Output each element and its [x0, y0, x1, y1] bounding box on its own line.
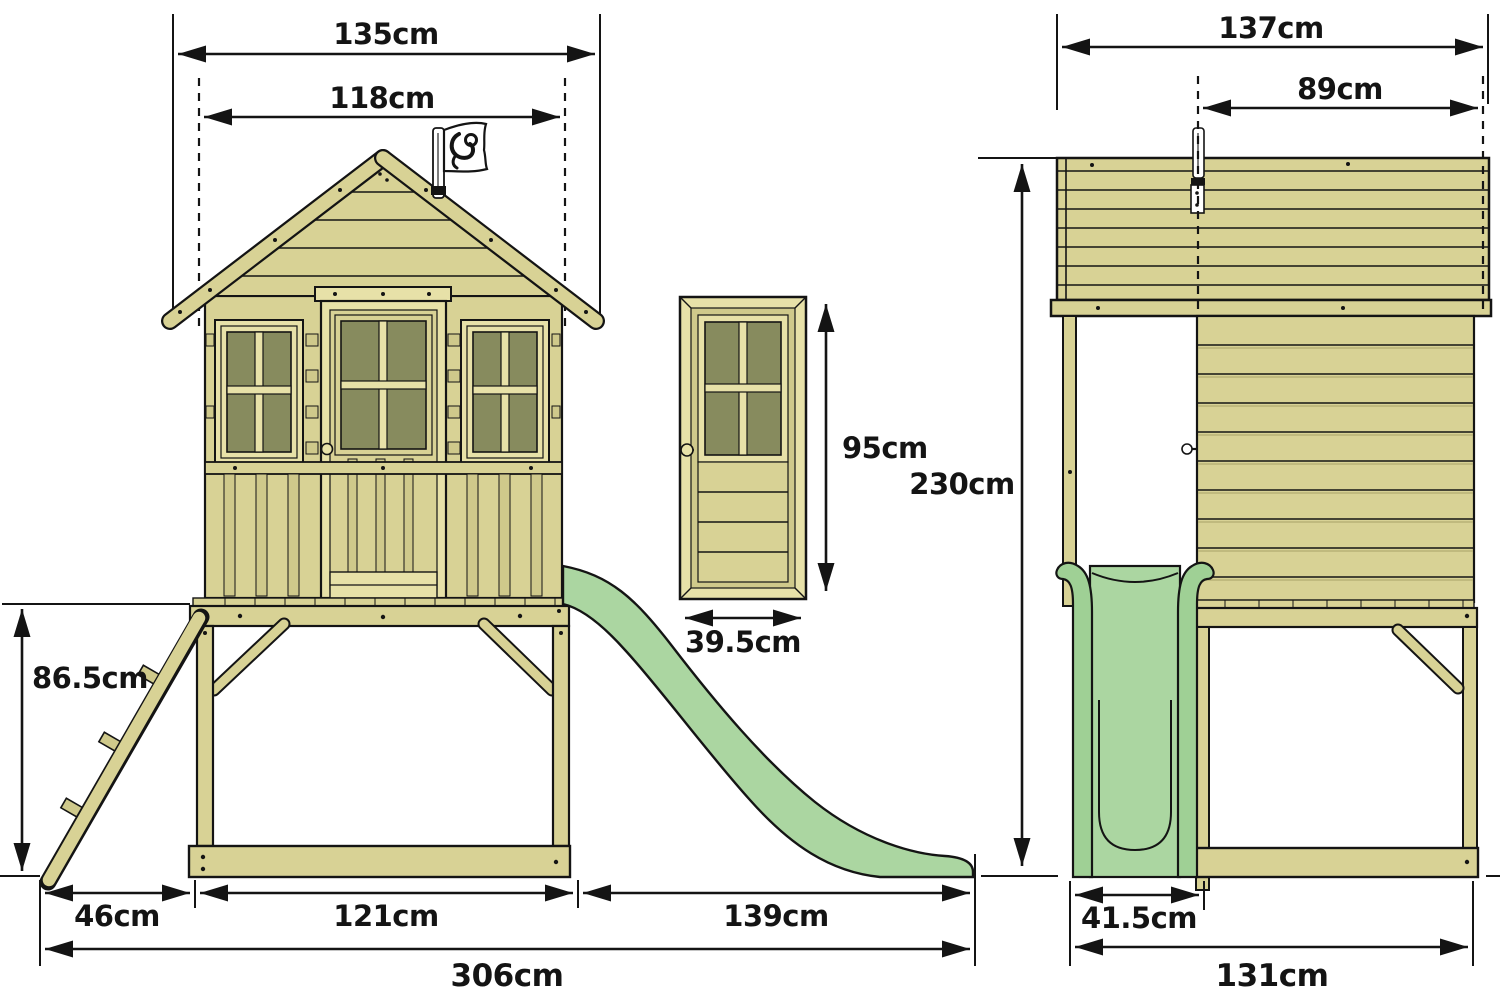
front-ladder: [48, 617, 201, 882]
door-muntin-horizontal: [705, 384, 781, 392]
label-total-length: 306cm: [451, 958, 564, 994]
side-wall: [1197, 316, 1474, 602]
label-inner-width: 118cm: [329, 81, 434, 115]
diagram-canvas: 135cm 118cm 86.5cm 46cm 121cm 139cm 306c…: [0, 0, 1500, 997]
label-base-depth: 131cm: [1216, 958, 1329, 994]
window-muntin-horizontal: [473, 386, 537, 394]
post-left: [197, 626, 213, 846]
deck-edge: [193, 598, 568, 606]
side-rim-joist: [1190, 608, 1477, 627]
label-platform-height: 86.5cm: [32, 661, 148, 695]
slide-profile: [563, 566, 973, 877]
side-slide: [1056, 563, 1213, 877]
side-roof-fascia: [1051, 300, 1491, 316]
label-roof-depth: 137cm: [1218, 11, 1323, 45]
post-right: [553, 626, 569, 846]
side-door-knob: [1182, 444, 1192, 454]
label-roof-width: 135cm: [333, 17, 438, 51]
slide-rail-left: [1056, 563, 1092, 877]
side-deck-edge: [1192, 600, 1474, 608]
front-underframe: [189, 598, 570, 877]
label-door-height: 95cm: [842, 431, 928, 465]
side-post-rear: [1463, 627, 1477, 848]
label-flag-to-rear: 89cm: [1297, 72, 1383, 106]
flag-pole-bracket: [431, 186, 446, 195]
door-knob: [322, 444, 333, 455]
rim-joist: [190, 606, 569, 626]
front-window-left: [215, 320, 303, 464]
label-slide-length: 139cm: [723, 899, 828, 933]
label-slide-width: 41.5cm: [1081, 901, 1197, 935]
side-roof: [1057, 158, 1489, 300]
front-door: [315, 287, 451, 598]
door-detail: [680, 297, 826, 618]
front-window-right: [461, 320, 549, 464]
door-detail-knob: [681, 444, 693, 456]
base-beam: [189, 846, 570, 877]
flag-icon: [431, 123, 487, 198]
label-base-width: 121cm: [333, 899, 438, 933]
window-muntin-horizontal: [227, 386, 291, 394]
side-base-beam: [1196, 848, 1478, 877]
label-total-height: 230cm: [909, 467, 1014, 501]
playhouse-dimension-diagram: 135cm 118cm 86.5cm 46cm 121cm 139cm 306c…: [0, 0, 1500, 997]
slide-bed: [1090, 566, 1180, 877]
label-ladder-depth: 46cm: [74, 899, 160, 933]
label-door-width: 39.5cm: [685, 625, 801, 659]
side-view: [978, 14, 1500, 966]
front-view: [48, 123, 973, 882]
side-underframe: [1189, 627, 1478, 890]
